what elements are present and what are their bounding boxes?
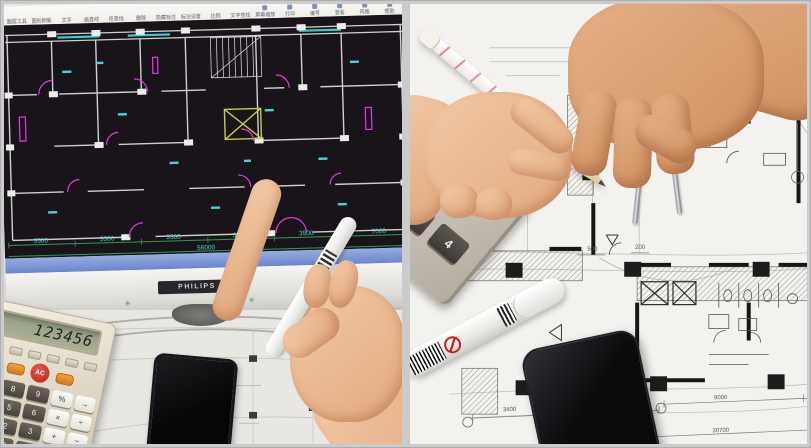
calc-key: ÷ <box>69 413 92 432</box>
calc-key: 9 <box>25 384 50 403</box>
svg-text:500: 500 <box>587 247 598 253</box>
brand-text: PHILIPS <box>178 283 216 291</box>
calc-key: 00 <box>4 435 14 444</box>
calc-key: 5 <box>4 398 22 417</box>
ce-key <box>55 372 75 387</box>
svg-text:3500: 3500 <box>166 234 181 241</box>
number-icon <box>312 4 317 9</box>
calculator-keypad: 7 8 9 % → 4 5 6 × ÷ 1 2 3 + <box>4 374 96 444</box>
svg-text:30700: 30700 <box>712 428 729 435</box>
menu-item: 编号 <box>302 4 327 17</box>
calc-key: → <box>73 395 96 414</box>
svg-text:3400: 3400 <box>502 407 516 413</box>
view-icon <box>337 4 342 8</box>
right-photo-blueprint-work: 500 200 3400 9000 30700 0 0 1 4 <box>410 4 808 444</box>
left-photo-cad-monitor: 图层工具 图形刷新 文字 画直线 任意线 删除 隐藏标注 标注设置 比例 文字查… <box>4 4 402 444</box>
calc-key: % <box>50 390 73 409</box>
green-sprout-mark: ✳ <box>124 300 131 307</box>
calc-key: − <box>65 432 88 444</box>
calc-key: 8 <box>4 379 26 398</box>
menu-item: 打印 <box>277 4 302 18</box>
svg-text:3500: 3500 <box>100 236 115 243</box>
calc-key: × <box>46 408 69 427</box>
help-icon <box>387 4 392 7</box>
menu-item: 屏幕缩放 <box>253 5 278 19</box>
menu-item: 帮助 <box>377 4 402 15</box>
toolbar-icon <box>263 5 268 10</box>
calc-key: 6 <box>21 403 46 422</box>
calc-key: + <box>42 427 65 444</box>
menu-item: 查看 <box>327 4 352 17</box>
calc-key: 2 <box>4 416 18 435</box>
style-icon <box>362 4 367 8</box>
svg-text:3500: 3500 <box>34 237 49 244</box>
print-icon <box>287 4 292 9</box>
green-sprout-mark: ✳ <box>248 297 255 304</box>
finger-knuckle <box>440 184 478 218</box>
svg-text:200: 200 <box>635 245 646 251</box>
photo-collage-frame: 图层工具 图形刷新 文字 画直线 任意线 删除 隐藏标注 标注设置 比例 文字查… <box>0 0 811 448</box>
calc-key: 3 <box>18 422 43 441</box>
finger-knuckle <box>476 188 512 220</box>
calc-key: . <box>14 440 39 444</box>
ac-key: AC <box>29 362 52 385</box>
calc-key: 4 <box>426 222 470 265</box>
svg-text:7000: 7000 <box>371 228 386 235</box>
menu-item: 风格 <box>352 4 377 16</box>
svg-text:9000: 9000 <box>714 395 728 401</box>
smartphone <box>146 353 239 444</box>
svg-text:3500: 3500 <box>299 230 314 237</box>
svg-text:56000: 56000 <box>197 244 216 251</box>
off-key <box>6 362 26 377</box>
